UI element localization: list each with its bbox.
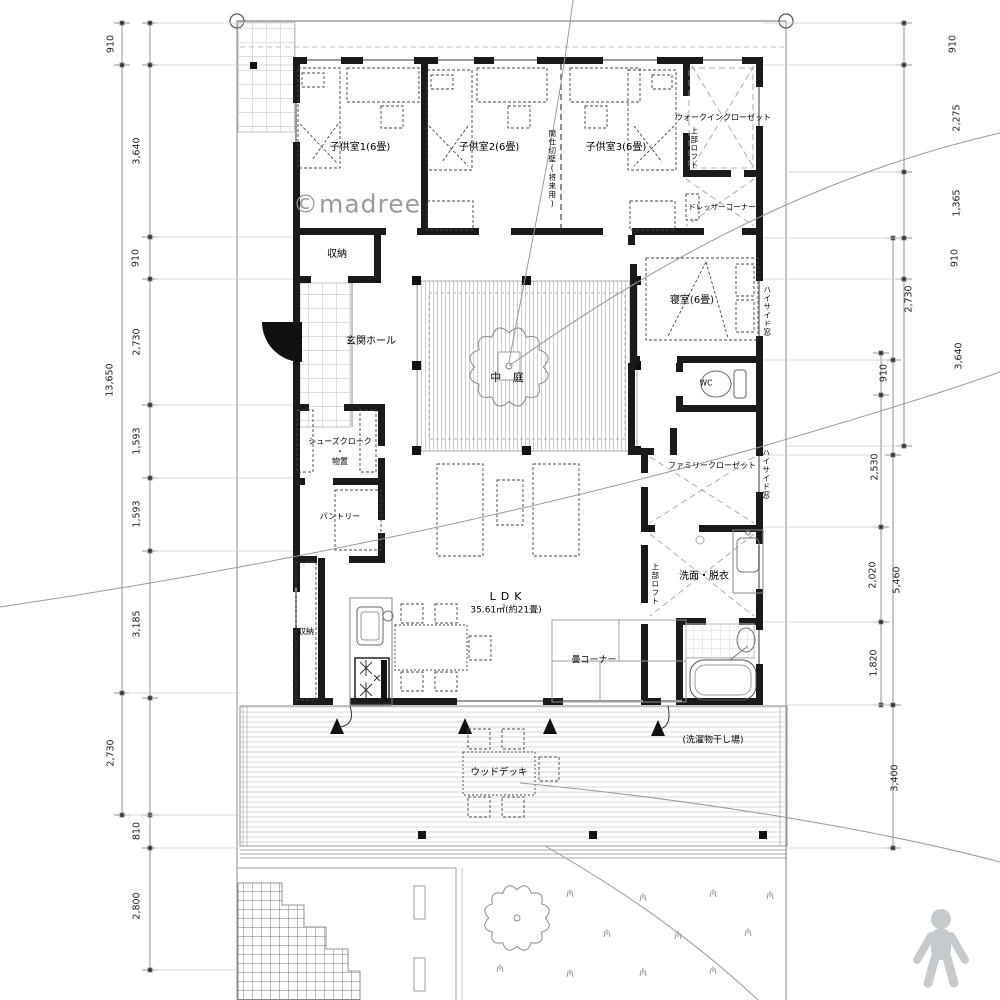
dim-left-9: 2,800: [132, 892, 143, 919]
dim-right-3: 910: [950, 249, 961, 267]
dim-left-3: 2,730: [132, 328, 143, 355]
room-label-bedroom: 寝室(6畳): [670, 295, 714, 308]
room-label-washroom: 洗面・脱衣: [679, 571, 729, 584]
dim-left-0: 910: [106, 35, 117, 53]
dim-right-5: 3,640: [954, 342, 965, 369]
label-dresser-corner: ドレッサーコーナー: [688, 202, 756, 211]
label-future-partition: 間仕切壁(将来用): [547, 129, 556, 209]
room-label-wc: WC: [700, 378, 713, 387]
dim-left-4: 1,593: [132, 427, 143, 454]
label-laundry-yard: (洗濯物干し場): [682, 735, 743, 746]
room-label-kids1: 子供室1(6畳): [330, 142, 391, 155]
watermark: ©madree: [293, 190, 421, 219]
garden: [238, 868, 773, 1000]
dim-right-1: 2,275: [952, 104, 963, 131]
dim-right-9: 5,460: [892, 566, 903, 593]
label-loft-above-1: 上部ロフト: [689, 127, 698, 170]
dim-left-total: 13,650: [105, 363, 116, 396]
room-label-wood-deck: ウッドデッキ: [470, 767, 527, 779]
label-highside-window-2: ハイサイド窓: [761, 449, 770, 500]
label-loft-above-2: 上部ロフト: [650, 563, 659, 606]
person-icon: [917, 909, 965, 983]
room-label-shoes-closet: シューズクローク ・ 物置: [308, 437, 372, 467]
room-label-kids2: 子供室2(6畳): [459, 142, 520, 155]
room-label-courtyard: 中 庭: [490, 371, 528, 385]
dim-right-0: 910: [948, 35, 959, 53]
room-label-tatami-corner: 畳コーナー: [571, 655, 616, 666]
closet-cross-marks: [650, 66, 754, 616]
dim-left-1: 3,640: [132, 137, 143, 164]
room-label-kids3: 子供室3(6畳): [586, 142, 647, 155]
label-ldk-area: 35.61㎡(約21畳): [470, 605, 541, 616]
room-label-ldk: LDK: [490, 590, 527, 604]
room-label-walk-in-closet: ウォークインクローゼット: [675, 113, 771, 123]
dim-right-10: 1,820: [869, 649, 880, 676]
lattice-terrace: [238, 883, 360, 1000]
dim-right-11: 3,400: [890, 764, 901, 791]
dim-left-6: 3,185: [132, 610, 143, 637]
courtyard-deck: [412, 276, 641, 455]
room-label-storage-left: 収納: [298, 627, 314, 637]
room-label-entrance-hall: 玄関ホール: [346, 336, 396, 349]
dim-left-5: 1,593: [132, 500, 143, 527]
room-label-storage-top: 収納: [327, 249, 347, 262]
room-label-family-closet: ファミリークローゼット: [668, 461, 756, 471]
floor-plan-page: 子供室1(6畳) 子供室2(6畳) 子供室3(6畳) 間仕切壁(将来用) ウォー…: [0, 0, 1000, 1000]
dim-left-7: 2,730: [106, 739, 117, 766]
entrance-door-swing: [262, 322, 302, 362]
dim-right-4: 2,730: [904, 285, 915, 312]
label-highside-window-1: ハイサイド窓: [762, 286, 771, 337]
property-boundary: [230, 14, 793, 1000]
dim-left-2: 910: [131, 249, 142, 267]
dim-right-6: 910: [879, 364, 890, 382]
dim-right-2: 1,365: [952, 189, 963, 216]
dim-left-8: 810: [132, 822, 143, 840]
dim-right-8: 2,020: [868, 561, 879, 588]
dim-right-7: 2,530: [870, 453, 881, 480]
room-label-pantry: パントリー: [320, 512, 360, 522]
